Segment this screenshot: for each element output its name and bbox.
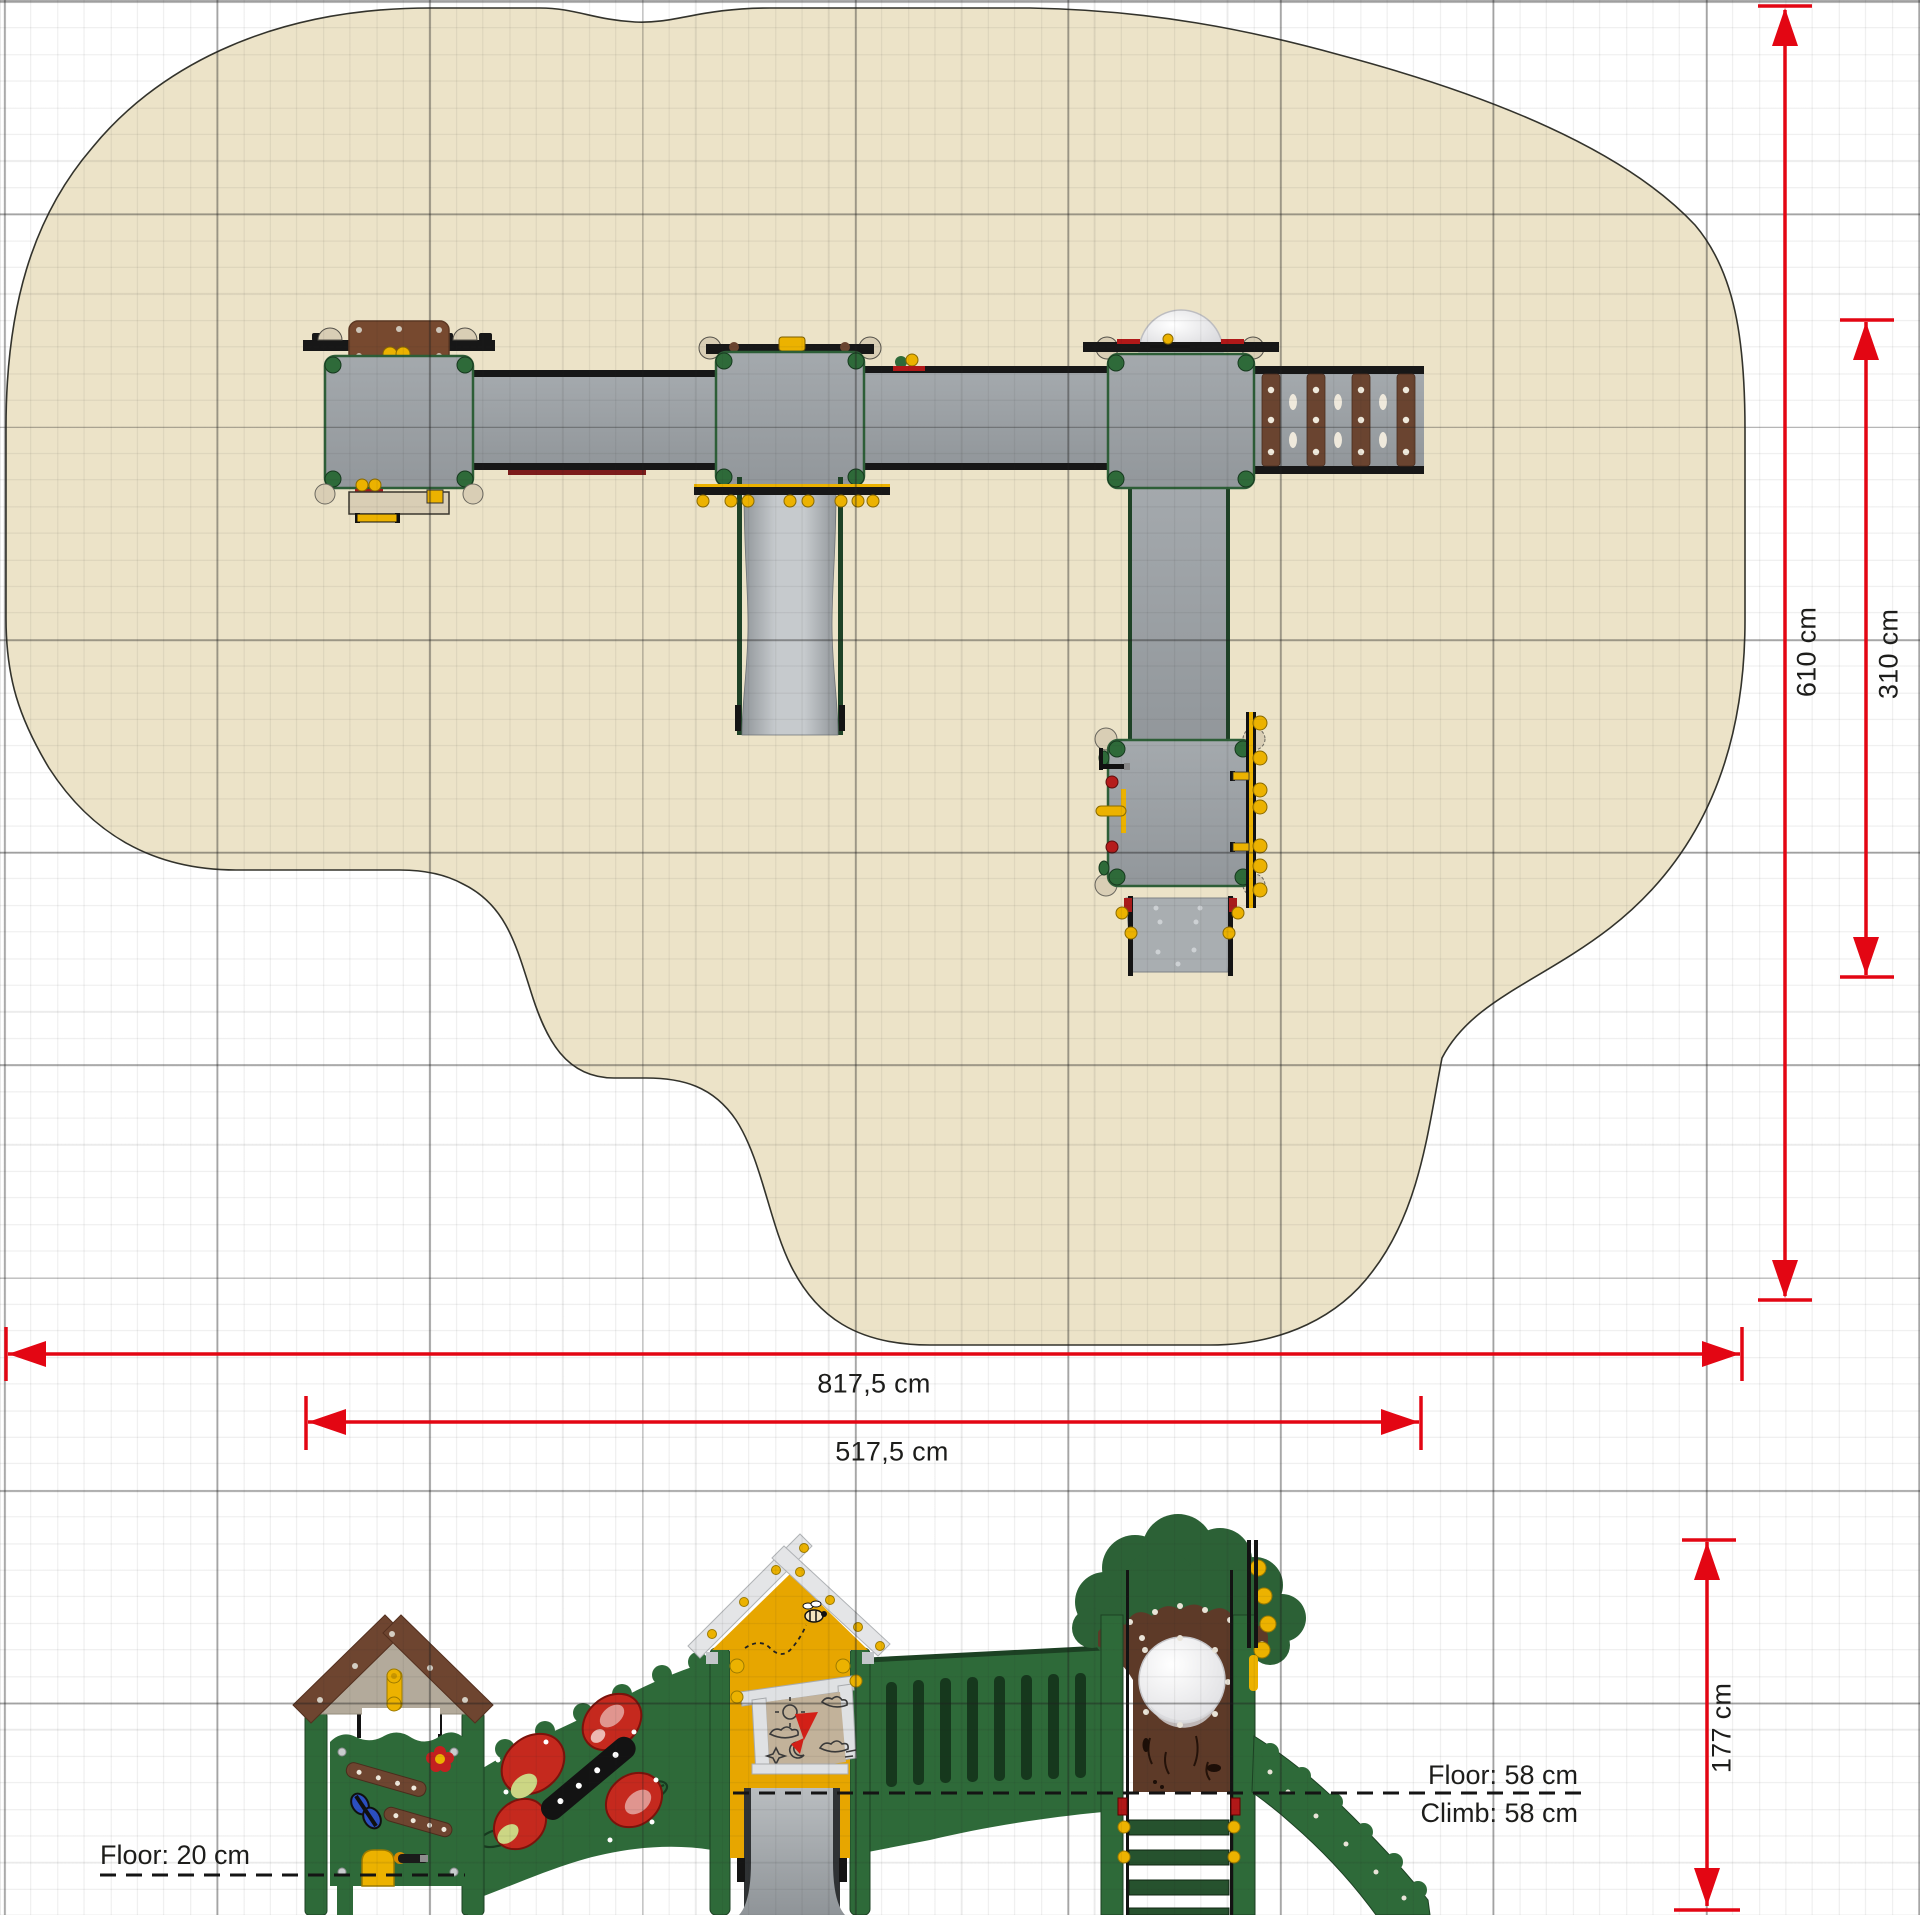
note-floor-left: Floor: 20 cm xyxy=(100,1840,250,1871)
dimension-lines xyxy=(0,0,1920,1915)
dim-label-depth-inner: 310 cm xyxy=(1874,609,1905,699)
drawing-canvas: 817,5 cm 517,5 cm 610 cm 310 cm 177 cm F… xyxy=(0,0,1920,1915)
note-floor-right: Floor: 58 cm xyxy=(1428,1760,1578,1791)
dim-label-height: 177 cm xyxy=(1707,1683,1738,1773)
dim-label-depth-total: 610 cm xyxy=(1792,607,1823,697)
dim-label-width-inner: 517,5 cm xyxy=(835,1437,948,1468)
dim-label-width-total: 817,5 cm xyxy=(817,1369,930,1400)
note-climb-right: Climb: 58 cm xyxy=(1420,1798,1578,1829)
